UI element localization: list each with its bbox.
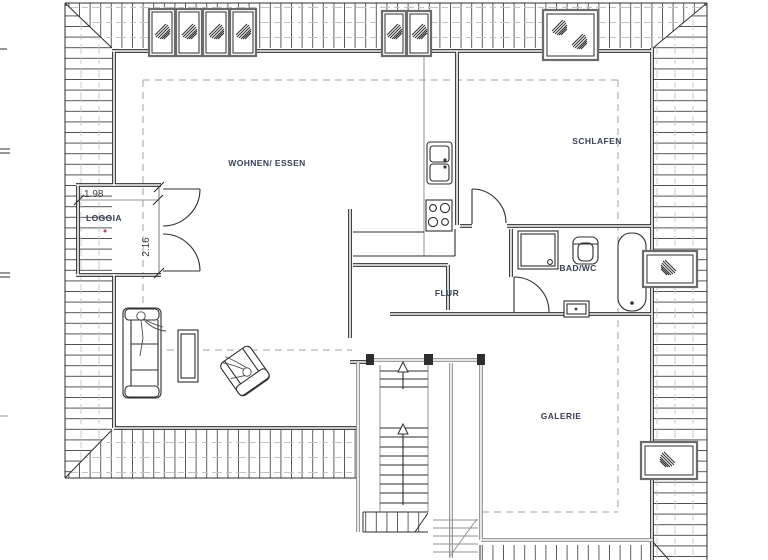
coffee-table — [178, 330, 198, 382]
stair-up-arrow-upper — [398, 362, 408, 389]
kitchen-cooktop — [426, 200, 452, 231]
toilet — [573, 237, 598, 264]
floor-plan-canvas: 1.98 2.16 WOHNEN/ ESSEN SCHLAFEN LOGGIA … — [0, 0, 768, 560]
washbasin — [564, 301, 589, 317]
room-label-loggia: LOGGIA — [86, 213, 122, 223]
sofa — [123, 308, 166, 398]
room-label-bath: BAD/WC — [559, 263, 596, 273]
loggia-width-dimension: 1.98 — [84, 189, 104, 200]
kitchen-sink — [427, 142, 452, 184]
margin-tick-marks — [0, 49, 10, 416]
shower-tray — [518, 231, 558, 269]
bedroom-door — [472, 189, 506, 224]
plan-marker-dot — [104, 230, 107, 233]
bathroom-fixtures — [518, 231, 646, 317]
doors — [163, 189, 549, 312]
room-label-hall: FLUR — [435, 288, 459, 298]
skylight-bank-kitchen — [382, 11, 431, 56]
bathroom-door — [514, 277, 549, 312]
roof-window-gallery-side — [641, 442, 697, 479]
skylight-bank-living — [149, 9, 256, 56]
living-room-furniture — [104, 230, 272, 399]
kitchen-unit — [353, 53, 455, 256]
loggia-double-door — [163, 189, 200, 271]
room-labels: WOHNEN/ ESSEN SCHLAFEN LOGGIA BAD/WC FLU… — [86, 136, 622, 421]
roof-hatch-areas — [65, 3, 707, 560]
skylight-bedroom — [543, 10, 598, 60]
room-label-gallery: GALERIE — [541, 411, 582, 421]
bathtub — [618, 233, 646, 311]
room-label-sleeping: SCHLAFEN — [572, 136, 621, 146]
room-label-living: WOHNEN/ ESSEN — [228, 158, 305, 168]
roof-window-bath-side — [643, 251, 697, 287]
loggia-depth-dimension: 2.16 — [141, 237, 152, 257]
